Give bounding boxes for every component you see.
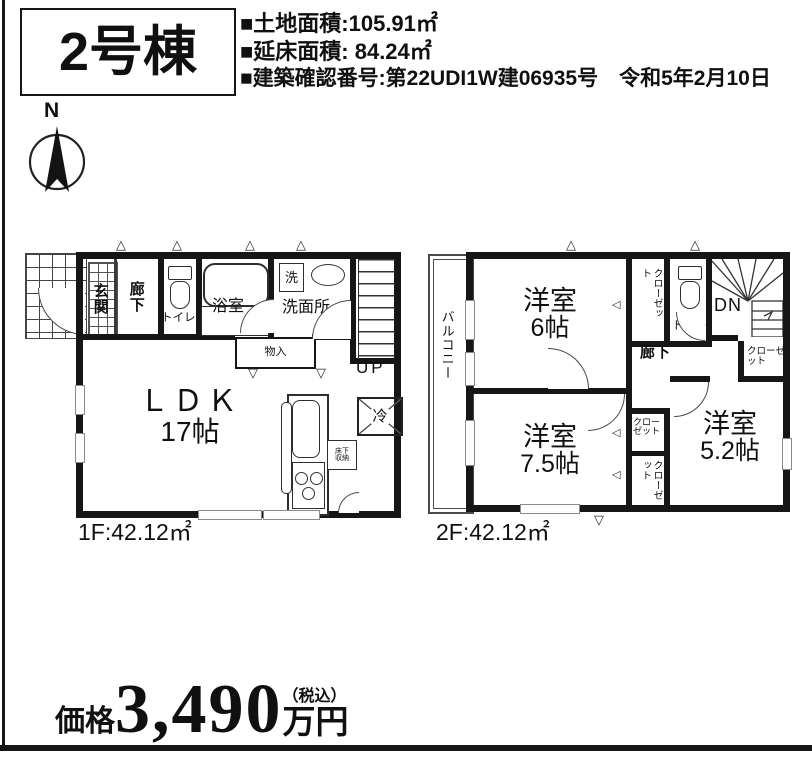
spec-land-area: ■土地面積:105.91㎡	[240, 12, 438, 35]
f1-stairs-label: UP	[356, 359, 386, 377]
room52-label: 洋室 5.2帖	[678, 405, 782, 469]
f2-closet-marker2-icon: ◁	[612, 428, 620, 439]
f2-hallway-label: 廊下	[640, 345, 670, 361]
price-amount: 3,490	[115, 678, 283, 742]
genkan-label: 玄関	[92, 283, 108, 315]
kitchen-sink-icon	[292, 400, 320, 458]
f1-partition-genkan	[114, 259, 117, 337]
f1-stairs-icon	[358, 259, 395, 359]
fridge-icon: 冷	[357, 397, 403, 436]
f2-closet-marker3-icon: ◁	[612, 470, 620, 481]
f1-toilet-tank-icon	[168, 266, 192, 280]
f2-window-right-icon	[782, 438, 792, 470]
room75-door-arc-icon	[588, 394, 625, 431]
f2-partition-closet-toilet	[664, 259, 670, 347]
f2-wall-bottom	[466, 505, 790, 512]
f2-area-label: 2F:42.12㎡	[436, 520, 550, 544]
f1-window-bottom1-icon	[198, 510, 262, 520]
room6-label: 洋室 6帖	[495, 283, 605, 345]
spec-floor-area: ■延床面積: 84.24㎡	[240, 40, 432, 63]
f2-wall-closet-east-bottom	[738, 376, 790, 382]
storage-label: 物入	[265, 347, 287, 359]
floor-storage-box: 床下収納	[327, 440, 357, 470]
f1-window-marker4-icon: △	[296, 238, 306, 251]
f1-toilet-label: トイレ	[161, 312, 196, 324]
ldk-label: ＬＤＫ 17帖	[120, 383, 260, 449]
flyer-page: 2号棟 ■土地面積:105.91㎡ ■延床面積: 84.24㎡ ■建築確認番号:…	[0, 0, 812, 764]
f1-area-label: 1F:42.12㎡	[78, 520, 192, 544]
f2-closet-marker1-icon: ◁	[612, 300, 620, 311]
f2-wall-top	[466, 252, 790, 259]
closet-east-label: クローゼット	[747, 347, 785, 367]
f2-window-left3-icon	[465, 420, 475, 466]
f1-door-marker1-icon: ▽	[248, 366, 258, 379]
room6-name: 洋室	[523, 287, 577, 315]
f2-window-bottom-icon	[520, 504, 580, 514]
closet-south-label: クローゼット	[636, 460, 662, 508]
washer-label: 洗	[285, 271, 298, 285]
bath-label: 浴室	[212, 299, 244, 316]
closet-north-label: クローゼット	[636, 268, 662, 322]
f2-window-left2-icon	[465, 352, 475, 386]
stove-icon	[292, 462, 325, 509]
price-block: 価格 3,490 （税込） 万円	[55, 650, 349, 742]
ldk-door-arc-icon	[338, 492, 359, 513]
f1-partition-hall-toilet	[158, 259, 164, 340]
f1-window-left2-icon	[75, 433, 85, 463]
f1-door-marker2-icon: ▽	[316, 366, 326, 379]
f2-wall-right	[783, 252, 790, 512]
ldk-name: ＬＤＫ	[139, 386, 241, 418]
f1-wall-right	[394, 252, 401, 518]
page-left-border	[2, 0, 5, 750]
price-unit-stack: （税込） 万円	[283, 689, 349, 742]
fridge-label: 冷	[371, 409, 388, 425]
price-prefix: 価格	[55, 706, 115, 743]
sink-icon	[311, 264, 345, 286]
floor-storage-label: 床下収納	[334, 448, 350, 463]
f2-wall-closet-divider	[626, 451, 670, 456]
f1-toilet-bowl-icon	[170, 281, 190, 309]
f1-wall-top	[76, 252, 401, 259]
balcony-label: バルコニー	[440, 310, 454, 380]
f2-window-marker1-icon: △	[566, 238, 576, 251]
f2-toilet-tank-icon	[678, 266, 702, 280]
f2-toilet-bowl-icon	[680, 281, 700, 309]
compass-n-label: N	[44, 100, 59, 122]
room75-name: 洋室	[523, 423, 577, 451]
room6-door-arc-icon	[548, 348, 589, 389]
f2-door-marker-icon: ▽	[594, 513, 604, 526]
f1-window-marker2-icon: △	[172, 238, 182, 251]
price-unit: 万円	[283, 705, 349, 740]
compass-icon	[26, 122, 90, 196]
f2-toilet-door-arc-icon	[676, 312, 705, 341]
room75-size: 7.5帖	[520, 451, 580, 477]
f1-hallway-label: 廊下	[128, 281, 144, 313]
closet-mid-label: クローゼット	[633, 418, 665, 437]
ldk-size: 17帖	[160, 417, 219, 446]
f1-window-marker3-icon: △	[245, 238, 255, 251]
f2-window-left1-icon	[465, 300, 475, 340]
f1-window-bottom2-icon	[263, 510, 320, 520]
unit-number-box: 2号棟	[20, 8, 236, 96]
room52-size: 5.2帖	[700, 438, 760, 464]
f1-window-left1-icon	[75, 385, 85, 415]
kitchen-side-panel-icon	[281, 402, 292, 494]
washer-box-icon: 洗	[279, 263, 304, 292]
f2-window-marker2-icon: △	[690, 238, 700, 251]
unit-number-label: 2号棟	[59, 24, 197, 81]
spec-building-permit: ■建築確認番号:第22UDI1W建06935号 令和5年2月10日	[240, 68, 771, 90]
f2-stairs-label: DN	[714, 296, 742, 315]
f2-partition-center	[626, 259, 632, 505]
room52-name: 洋室	[703, 410, 757, 438]
room6-size: 6帖	[531, 315, 570, 341]
f1-window-marker1-icon: △	[116, 238, 126, 251]
f2-wall-closet-mid-top	[626, 408, 670, 414]
